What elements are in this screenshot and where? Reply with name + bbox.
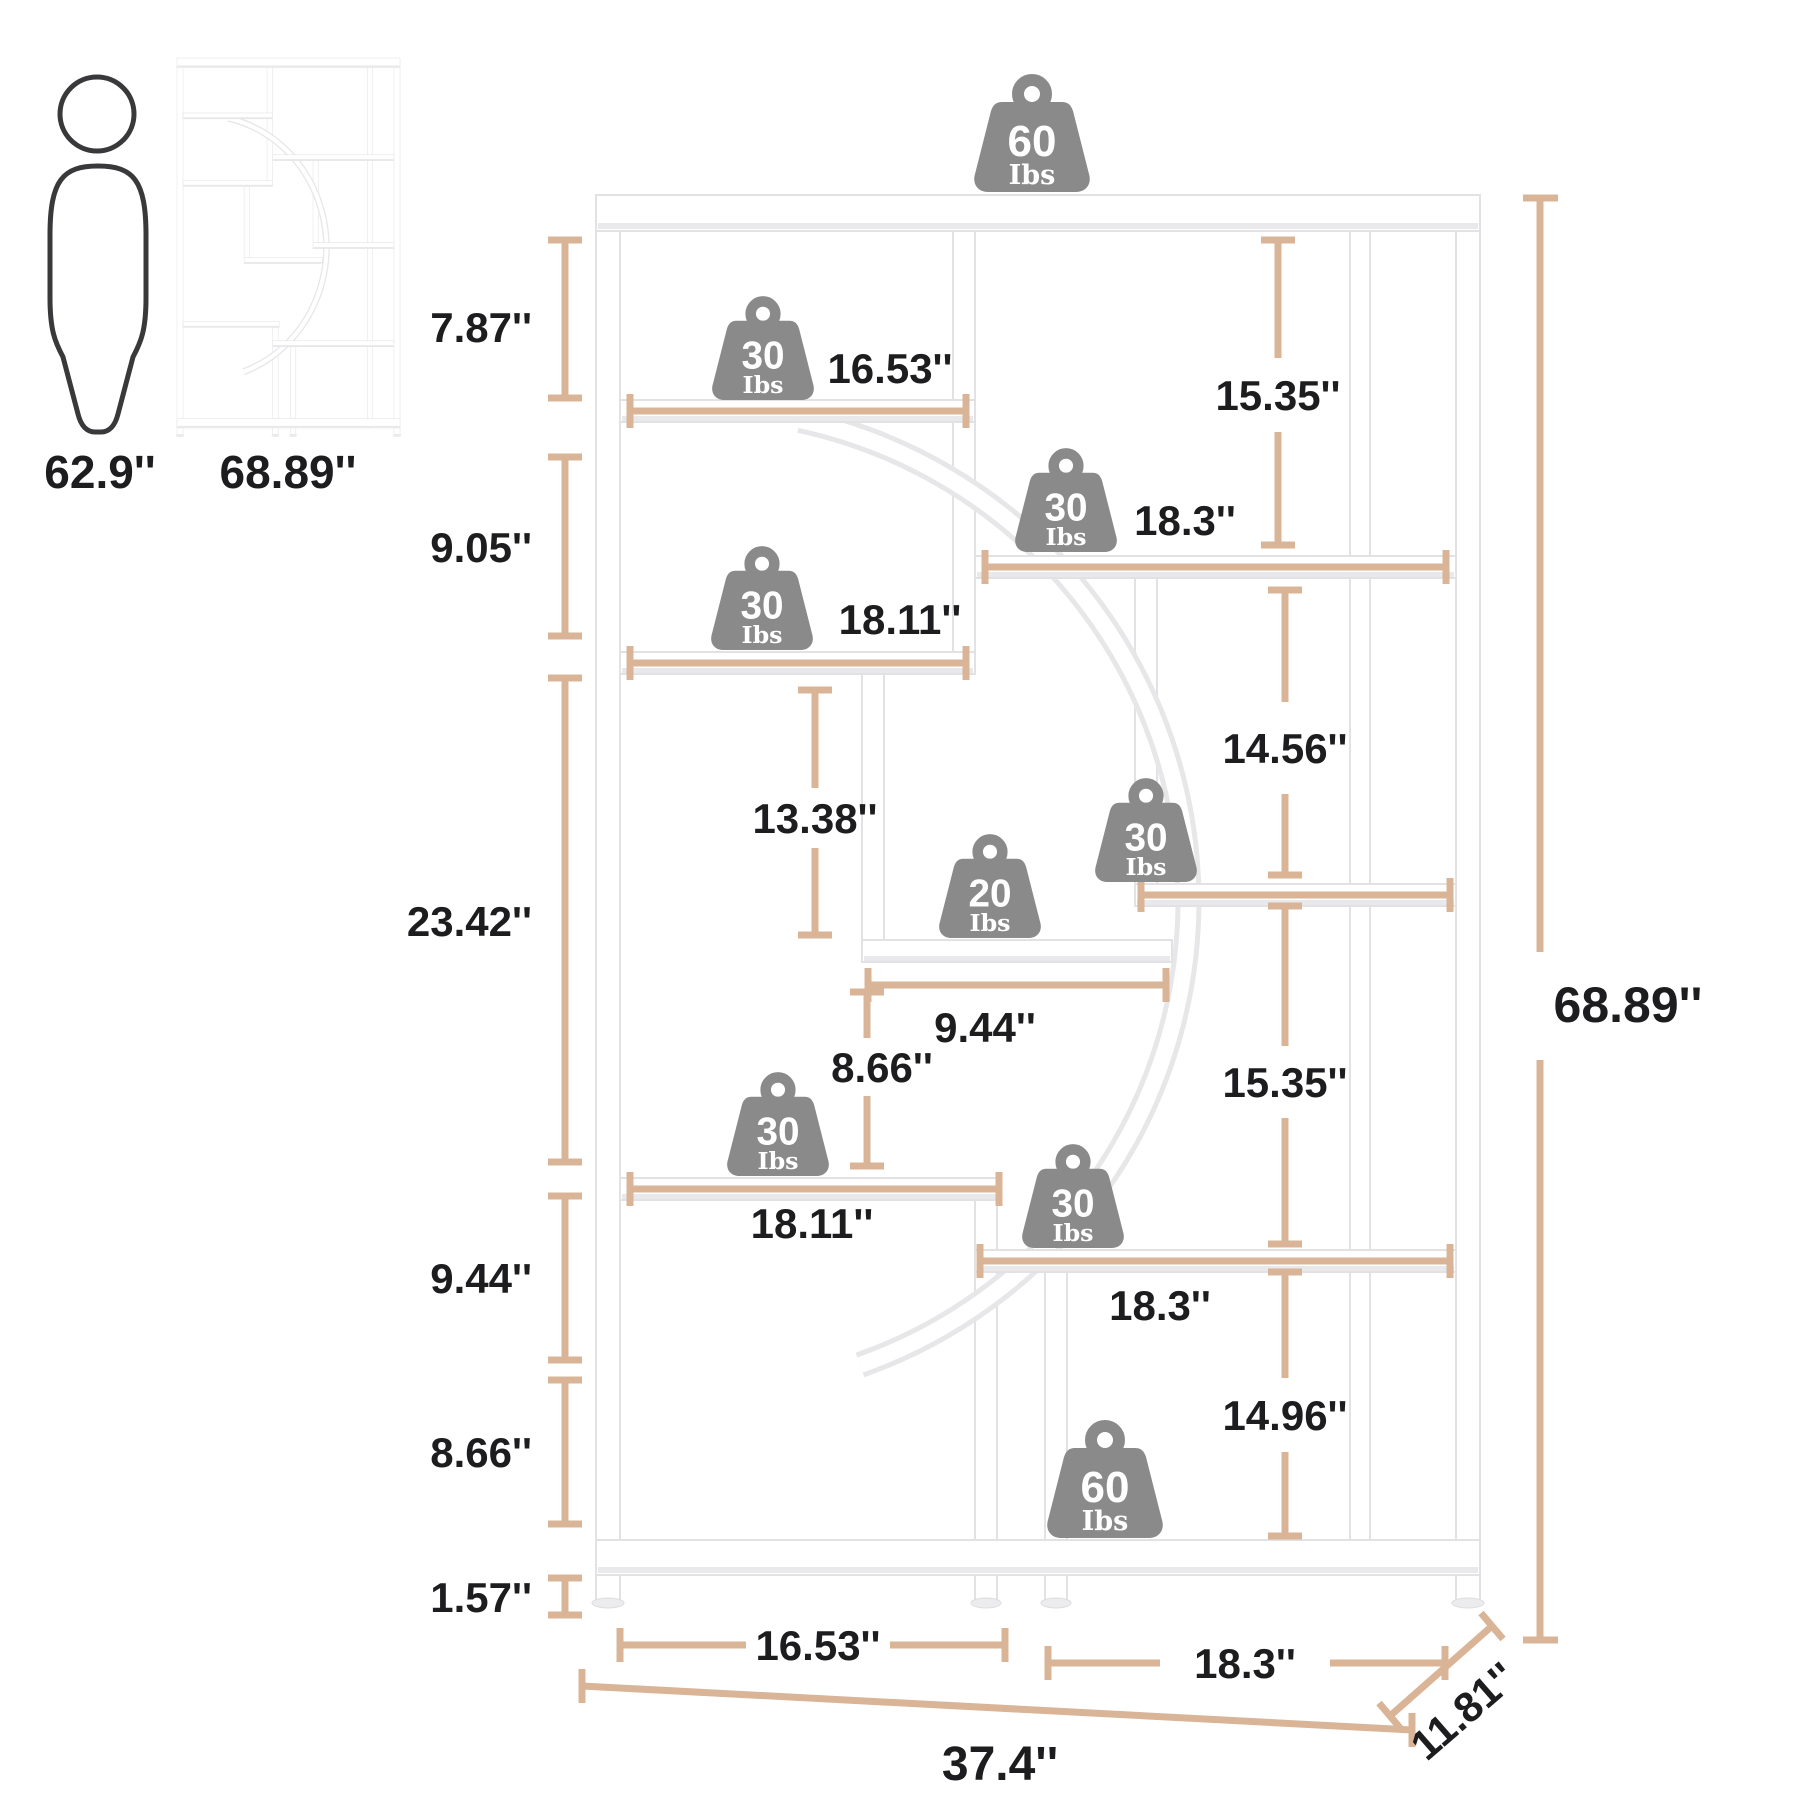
dim-line-small-shelf-width <box>868 968 1166 1002</box>
weight-shelf1: 30Ibs <box>712 301 814 400</box>
reference-shelf-thumbnail <box>176 58 401 437</box>
svg-text:60: 60 <box>1081 1463 1130 1512</box>
svg-text:Ibs: Ibs <box>1082 1506 1129 1537</box>
dim-label-shelf2-width: 18.3'' <box>1134 497 1236 544</box>
svg-text:Ibs: Ibs <box>1045 523 1086 551</box>
weight-shelf6: 30Ibs <box>727 1077 829 1176</box>
thumbnail-height-label: 68.89'' <box>220 446 357 498</box>
svg-text:Ibs: Ibs <box>757 1147 798 1175</box>
dim-label-shelf7-width: 18.3'' <box>1109 1282 1211 1329</box>
dim-line-lower-second-section <box>548 1380 582 1524</box>
dim-label-depth: 11.81'' <box>1402 1653 1525 1769</box>
dim-label-right-lower: 14.96'' <box>1222 1392 1347 1439</box>
weight-small-shelf: 20Ibs <box>939 839 1041 938</box>
diagram-canvas: 62.9'' 68.89'' 7.87'' <box>0 0 1800 1800</box>
weight-shelf2: 30Ibs <box>1015 453 1117 552</box>
dim-label-cell-center: 8.66'' <box>831 1044 933 1091</box>
dim-label-cell-left: 13.38'' <box>752 795 877 842</box>
dim-label-shelf3-width: 18.11'' <box>839 596 962 643</box>
svg-text:Ibs: Ibs <box>1125 853 1166 881</box>
dim-line-second-section <box>548 457 582 636</box>
svg-text:60: 60 <box>1008 117 1057 166</box>
dim-label-bottom-left-width: 16.53'' <box>755 1622 880 1669</box>
dim-line-middle-section <box>548 678 582 1162</box>
product-dimension-diagram: 62.9'' 68.89'' 7.87'' <box>0 0 1800 1800</box>
svg-text:Ibs: Ibs <box>969 909 1010 937</box>
dim-label-foot-height: 1.57'' <box>430 1574 532 1621</box>
dim-line-overall-height <box>1523 198 1558 1640</box>
dim-label-cell-right-upper: 14.56'' <box>1222 725 1347 772</box>
human-height-label: 62.9'' <box>44 446 155 498</box>
svg-text:Ibs: Ibs <box>742 371 783 399</box>
dim-line-lower-section <box>548 1196 582 1360</box>
dim-label-shelf6-width: 18.11'' <box>751 1200 874 1247</box>
svg-text:Ibs: Ibs <box>741 621 782 649</box>
dim-label-second-section: 9.05'' <box>430 524 532 571</box>
dim-line-foot-height <box>548 1578 582 1615</box>
dim-label-right-top: 15.35'' <box>1215 372 1340 419</box>
dim-label-small-shelf-width: 9.44'' <box>934 1004 1036 1051</box>
main-shelf-diagram <box>592 195 1484 1608</box>
dim-label-lower-section: 9.44'' <box>430 1255 532 1302</box>
dim-label-bottom-right-width: 18.3'' <box>1194 1640 1296 1687</box>
dim-label-right-mid: 15.35'' <box>1222 1059 1347 1106</box>
weight-shelf3: 30Ibs <box>711 551 813 650</box>
dim-label-overall-width: 37.4'' <box>942 1738 1058 1791</box>
reference-human-figure <box>50 77 146 432</box>
weight-top: 60Ibs <box>974 80 1090 192</box>
dim-label-overall-height: 68.89'' <box>1554 977 1703 1033</box>
dim-label-middle-section: 23.42'' <box>407 898 532 945</box>
svg-text:Ibs: Ibs <box>1009 160 1056 191</box>
dim-label-top-section: 7.87'' <box>430 304 532 351</box>
dim-line-top-section <box>548 240 582 398</box>
dim-label-shelf1-width: 16.53'' <box>827 345 952 392</box>
dim-label-lower-second-section: 8.66'' <box>430 1429 532 1476</box>
svg-text:Ibs: Ibs <box>1052 1219 1093 1247</box>
